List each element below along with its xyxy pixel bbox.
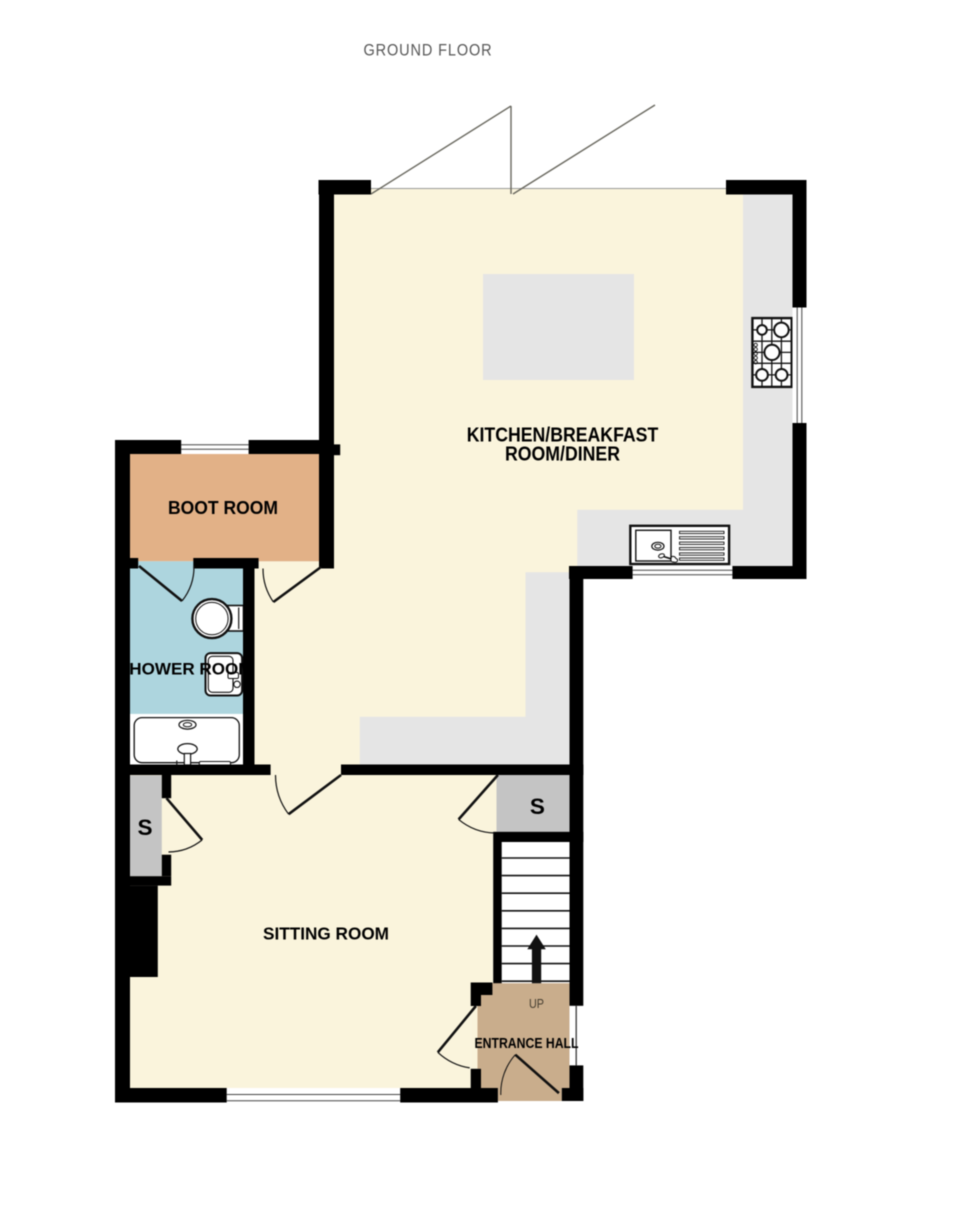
svg-text:ROOM/DINER: ROOM/DINER: [505, 444, 620, 466]
svg-text:S: S: [530, 794, 545, 819]
svg-text:SHOWER ROOM: SHOWER ROOM: [118, 659, 253, 678]
svg-text:S: S: [137, 815, 152, 840]
svg-text:BOOT ROOM: BOOT ROOM: [168, 498, 278, 518]
svg-text:SITTING ROOM: SITTING ROOM: [263, 924, 389, 944]
svg-text:UP: UP: [529, 997, 544, 1011]
svg-text:GROUND FLOOR: GROUND FLOOR: [364, 42, 493, 60]
svg-text:ENTRANCE HALL: ENTRANCE HALL: [475, 1036, 579, 1052]
